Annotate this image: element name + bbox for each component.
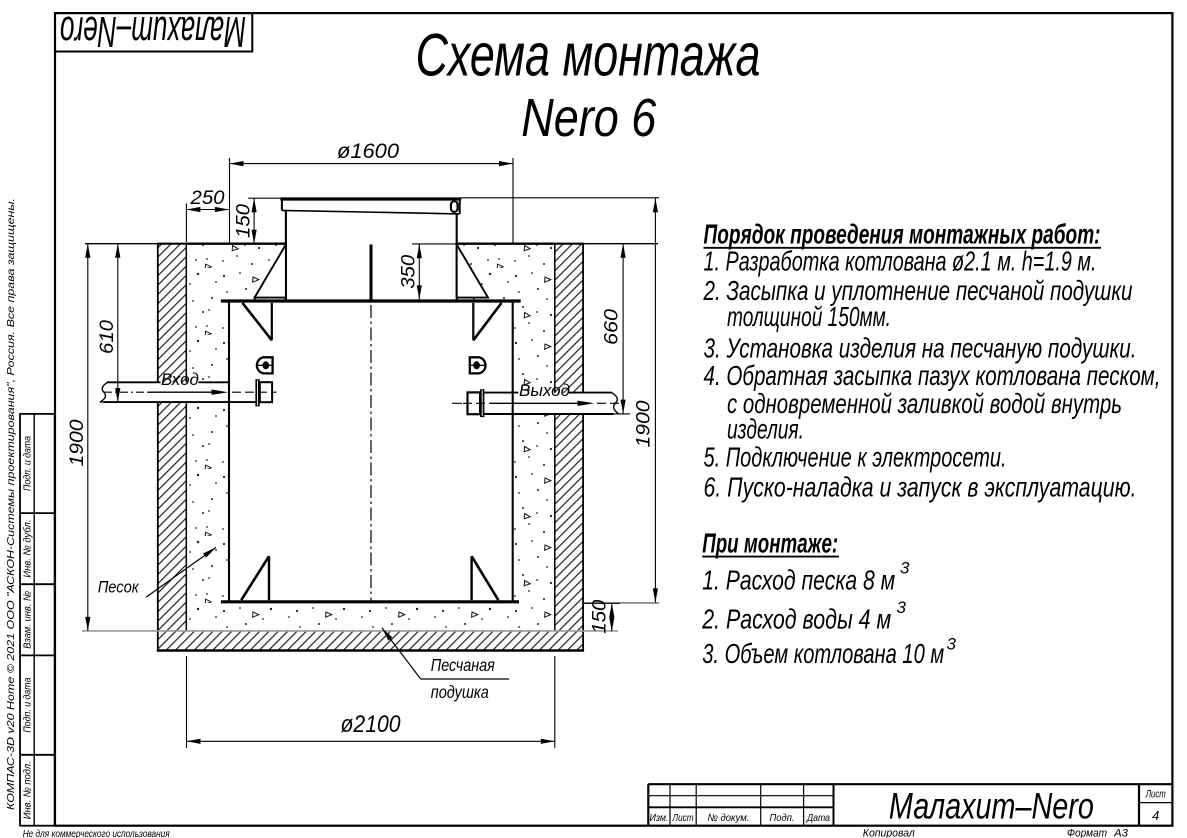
svg-text:3: 3 [897,598,907,617]
svg-text:При монтаже:: При монтаже: [702,527,838,558]
svg-text:150: 150 [590,599,611,633]
svg-text:2. Расход воды 4 м: 2. Расход воды 4 м [701,603,891,634]
svg-text:250: 250 [189,188,225,209]
svg-text:3. Установка изделия на песчан: 3. Установка изделия на песчаную подушки… [704,332,1137,363]
svg-text:Подп. и дата: Подп. и дата [22,436,34,491]
svg-text:толщиной 150мм.: толщиной 150мм. [727,301,891,332]
svg-text:1900: 1900 [633,400,655,447]
svg-text:3: 3 [900,559,910,578]
svg-text:4. Обратная засыпка пазух котл: 4. Обратная засыпка пазух котлована песк… [704,360,1161,391]
svg-text:Инв. № подл.: Инв. № подл. [22,761,34,819]
svg-text:ø1600: ø1600 [337,140,399,163]
svg-text:Дата: Дата [806,812,830,824]
svg-text:3. Объем котлована 10 м: 3. Объем котлована 10 м [702,638,944,669]
svg-text:Nero 6: Nero 6 [521,88,657,148]
svg-text:Инв. № дубл.: Инв. № дубл. [22,520,34,578]
svg-text:№ докум.: № докум. [708,812,750,824]
svg-text:150: 150 [234,204,255,238]
svg-text:Вход: Вход [161,370,199,389]
svg-text:Изм.: Изм. [650,812,669,824]
svg-text:Схема монтажа: Схема монтажа [416,22,761,89]
svg-text:Малахит–Nero: Малахит–Nero [889,786,1094,827]
svg-text:5. Подключение к электросети.: 5. Подключение к электросети. [704,441,1007,472]
svg-text:1. Разработка котлована ø2.1 м: 1. Разработка котлована ø2.1 м. h=1.9 м. [704,246,1097,277]
svg-text:Лист: Лист [1145,789,1166,801]
svg-text:КОМПАС-3D v20 Home © 2021 ООО: КОМПАС-3D v20 Home © 2021 ООО "АСКОН-Сис… [6,198,17,810]
svg-text:4: 4 [1152,808,1159,823]
svg-text:Песок: Песок [98,578,140,597]
svg-text:Песчаная: Песчаная [431,655,495,675]
svg-text:Выход: Выход [519,381,570,400]
svg-text:Малахит–Nero: Малахит–Nero [60,7,246,56]
svg-text:Подп.: Подп. [770,812,795,824]
svg-text:Взам. инв. №: Взам. инв. № [22,591,34,649]
svg-text:изделия.: изделия. [727,414,804,445]
svg-text:1. Расход песка 8 м: 1. Расход песка 8 м [702,564,895,595]
svg-text:350: 350 [398,254,419,288]
svg-text:подушка: подушка [431,682,489,702]
svg-text:610: 610 [97,320,118,354]
svg-text:Подп. и дата: Подп. и дата [22,677,34,732]
svg-text:Формат: Формат [1067,828,1107,838]
svg-text:1900: 1900 [66,419,88,466]
svg-text:3: 3 [947,635,957,654]
svg-text:Лист: Лист [672,812,694,824]
svg-text:ø2100: ø2100 [341,711,402,738]
svg-text:6. Пуско-наладка и запуск в эк: 6. Пуско-наладка и запуск в эксплуатацию… [704,471,1137,502]
svg-text:660: 660 [600,309,622,345]
svg-text:Копировал: Копировал [863,828,915,838]
svg-text:А3: А3 [1113,828,1129,838]
svg-text:Не для коммерческого использов: Не для коммерческого использования [23,829,171,838]
